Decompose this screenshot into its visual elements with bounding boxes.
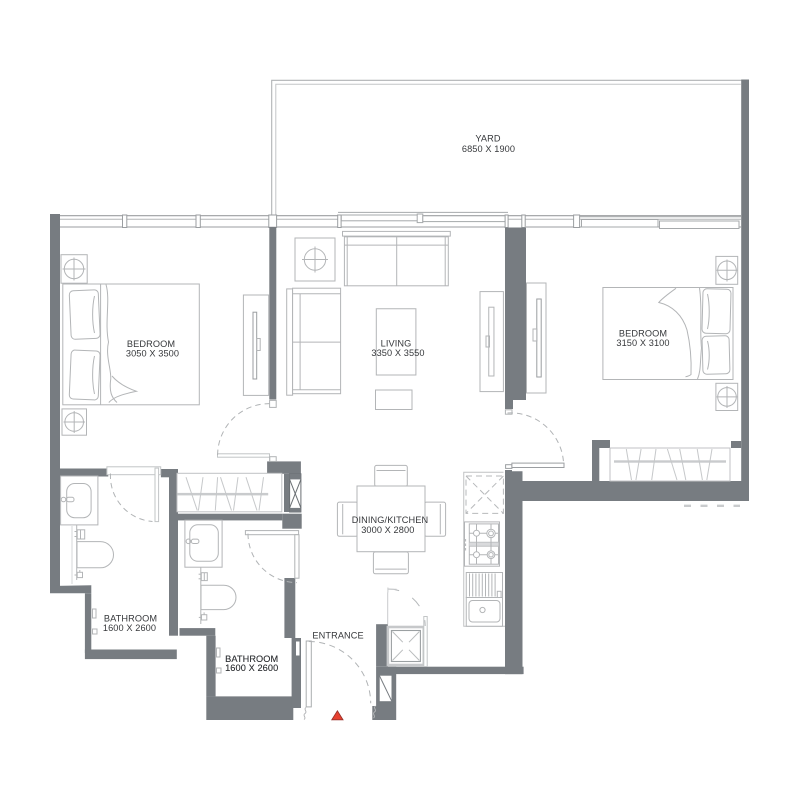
svg-text:3000 X 2800: 3000 X 2800 — [361, 525, 414, 535]
svg-text:DINING/KITCHEN: DINING/KITCHEN — [352, 515, 428, 525]
svg-text:YARD: YARD — [475, 133, 501, 143]
svg-text:3150 X 3100: 3150 X 3100 — [616, 338, 669, 348]
svg-text:6850 X 1900: 6850 X 1900 — [462, 144, 515, 154]
svg-text:3050 X 3500: 3050 X 3500 — [126, 349, 179, 359]
svg-text:3350 X 3550: 3350 X 3550 — [371, 348, 424, 358]
svg-text:BEDROOM: BEDROOM — [619, 328, 667, 338]
svg-text:LIVING: LIVING — [381, 339, 412, 349]
svg-text:1600 X 2600: 1600 X 2600 — [225, 663, 278, 673]
svg-text:BEDROOM: BEDROOM — [127, 339, 175, 349]
svg-text:1600 X 2600: 1600 X 2600 — [103, 623, 156, 633]
svg-text:BATHROOM: BATHROOM — [104, 613, 157, 623]
svg-text:ENTRANCE: ENTRANCE — [312, 630, 363, 640]
